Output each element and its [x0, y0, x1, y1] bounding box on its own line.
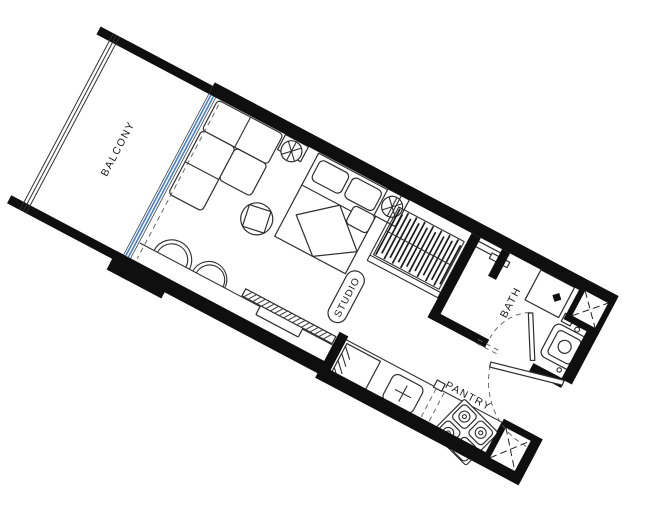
balcony-label: BALCONY — [99, 119, 138, 178]
round-side-table — [235, 197, 278, 240]
floor-plan-svg: BALCONY STUDIO BATH PANTRY — [0, 0, 648, 523]
bath-label: BATH — [498, 285, 524, 320]
floor-plan: BALCONY STUDIO BATH PANTRY — [0, 23, 619, 492]
door-stop — [556, 367, 562, 373]
balcony-railing — [20, 33, 120, 213]
floor-plan-canvas: BALCONY STUDIO BATH PANTRY — [0, 0, 648, 523]
studio-label: STUDIO — [325, 268, 368, 326]
